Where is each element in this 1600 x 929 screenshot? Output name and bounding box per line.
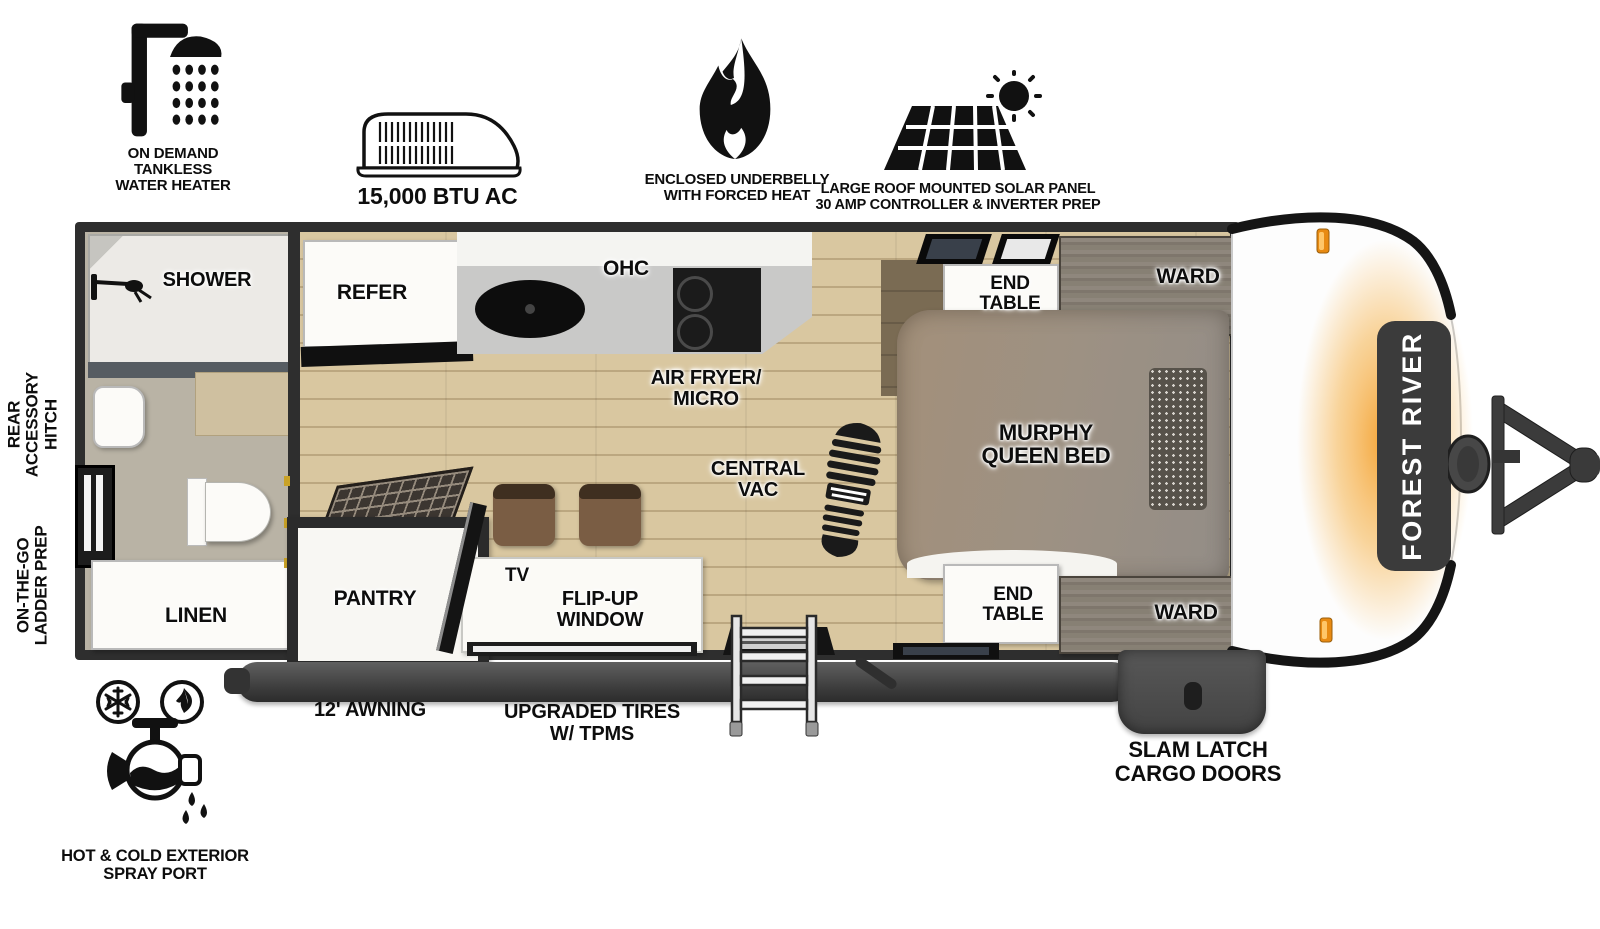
bath-window [75,465,115,568]
ac-label: 15,000 BTU AC [320,184,555,209]
awning-roll [237,662,1132,702]
ladder-prep-label: ON-THE-GO LADDER PREP [15,499,52,671]
spray-port-icon [80,676,232,838]
tires-label: UPGRADED TIRES W/ TPMS [482,702,702,745]
ohc-label: OHC [576,258,676,280]
air-fryer-micro-label: AIR FRYER/ MICRO [606,368,806,410]
door-hinge [284,476,290,486]
rear-accessory-hitch-label: REAR ACCESSORY HITCH [5,339,60,511]
brand-badge-text: FOREST RIVER [1397,331,1427,561]
murphy-bed-label: MURPHY QUEEN BED [926,421,1166,467]
toilet-tank [187,478,207,546]
water-heater-label: ON DEMAND TANKLESS WATER HEATER [88,146,258,195]
central-vac-label: CENTRAL VAC [678,459,838,501]
shower-head-icon [106,16,234,144]
awning-label: 12' AWNING [270,700,470,722]
flame-icon [683,36,787,176]
slam-latch-icon [1184,682,1202,710]
rooftop-ac-icon [350,102,525,184]
flip-up-window-sill [467,642,697,656]
refer-label: REFER [302,282,442,304]
bedroom-window [992,234,1060,264]
end-table-top-label: END TABLE [955,274,1065,314]
pantry-label: PANTRY [295,588,455,610]
kitchen-sink [475,280,585,338]
spray-port-label: HOT & COLD EXTERIOR SPRAY PORT [35,848,275,884]
cargo-doors-label: SLAM LATCH CARGO DOORS [1068,738,1328,786]
end-table-bottom-label: END TABLE [958,585,1068,625]
entry-steps [722,614,826,740]
stove-cooktop [673,268,761,352]
shower-label: SHOWER [127,270,287,291]
bath-vanity [195,372,289,436]
cargo-door [1118,650,1266,734]
floorplan-diagram: ON DEMAND TANKLESS WATER HEATER 15,000 B… [0,0,1600,929]
flip-up-window-label: FLIP-UP WINDOW [505,589,695,631]
linen-label: LINEN [116,605,276,627]
trailer-body: LINEN SHOWER REFER OHC AIR FRYER/ MICRO [75,222,1240,660]
tv-label: TV [487,566,547,586]
tongue-hitch [1448,392,1600,540]
dinette-stool [579,484,641,546]
solar-label: LARGE ROOF MOUNTED SOLAR PANEL 30 AMP CO… [798,182,1118,213]
solar-panel-icon [876,70,1044,182]
front-cap: FOREST RIVER [1225,203,1475,678]
bath-wall [288,232,300,540]
toilet-bowl [205,482,271,542]
bottom-wall-window [893,643,999,659]
dinette-stool [493,484,555,546]
bath-sink [93,386,145,448]
bedroom-window [916,234,992,264]
